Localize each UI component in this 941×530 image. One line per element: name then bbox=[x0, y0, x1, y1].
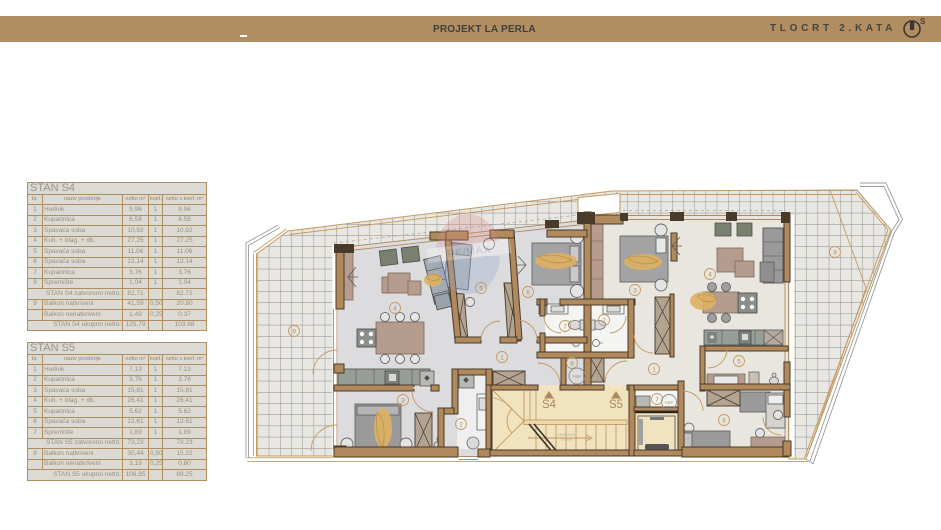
svg-text:6: 6 bbox=[526, 290, 530, 297]
svg-text:8: 8 bbox=[833, 250, 837, 257]
svg-text:2: 2 bbox=[459, 422, 463, 429]
svg-text:5: 5 bbox=[479, 286, 483, 293]
svg-text:3: 3 bbox=[401, 398, 405, 405]
svg-text:9: 9 bbox=[292, 329, 296, 336]
svg-text:S5: S5 bbox=[609, 399, 623, 411]
svg-text:S4: S4 bbox=[542, 399, 557, 411]
svg-text:bojler: bojler bbox=[665, 401, 675, 405]
svg-text:4: 4 bbox=[393, 306, 397, 313]
svg-text:bojler: bojler bbox=[573, 375, 583, 379]
svg-text:7: 7 bbox=[655, 397, 659, 404]
svg-text:3: 3 bbox=[633, 288, 637, 295]
svg-text:8: 8 bbox=[570, 361, 574, 368]
svg-text:16x18,5/28: 16x18,5/28 bbox=[558, 433, 575, 437]
svg-text:4: 4 bbox=[708, 272, 712, 279]
svg-text:2: 2 bbox=[602, 318, 606, 325]
svg-text:1: 1 bbox=[652, 367, 656, 374]
svg-text:7: 7 bbox=[563, 324, 567, 331]
svg-text:17,5/28: 17,5/28 bbox=[561, 438, 572, 442]
svg-text:1: 1 bbox=[500, 355, 504, 362]
svg-text:5: 5 bbox=[737, 359, 741, 366]
svg-text:6: 6 bbox=[722, 418, 726, 425]
